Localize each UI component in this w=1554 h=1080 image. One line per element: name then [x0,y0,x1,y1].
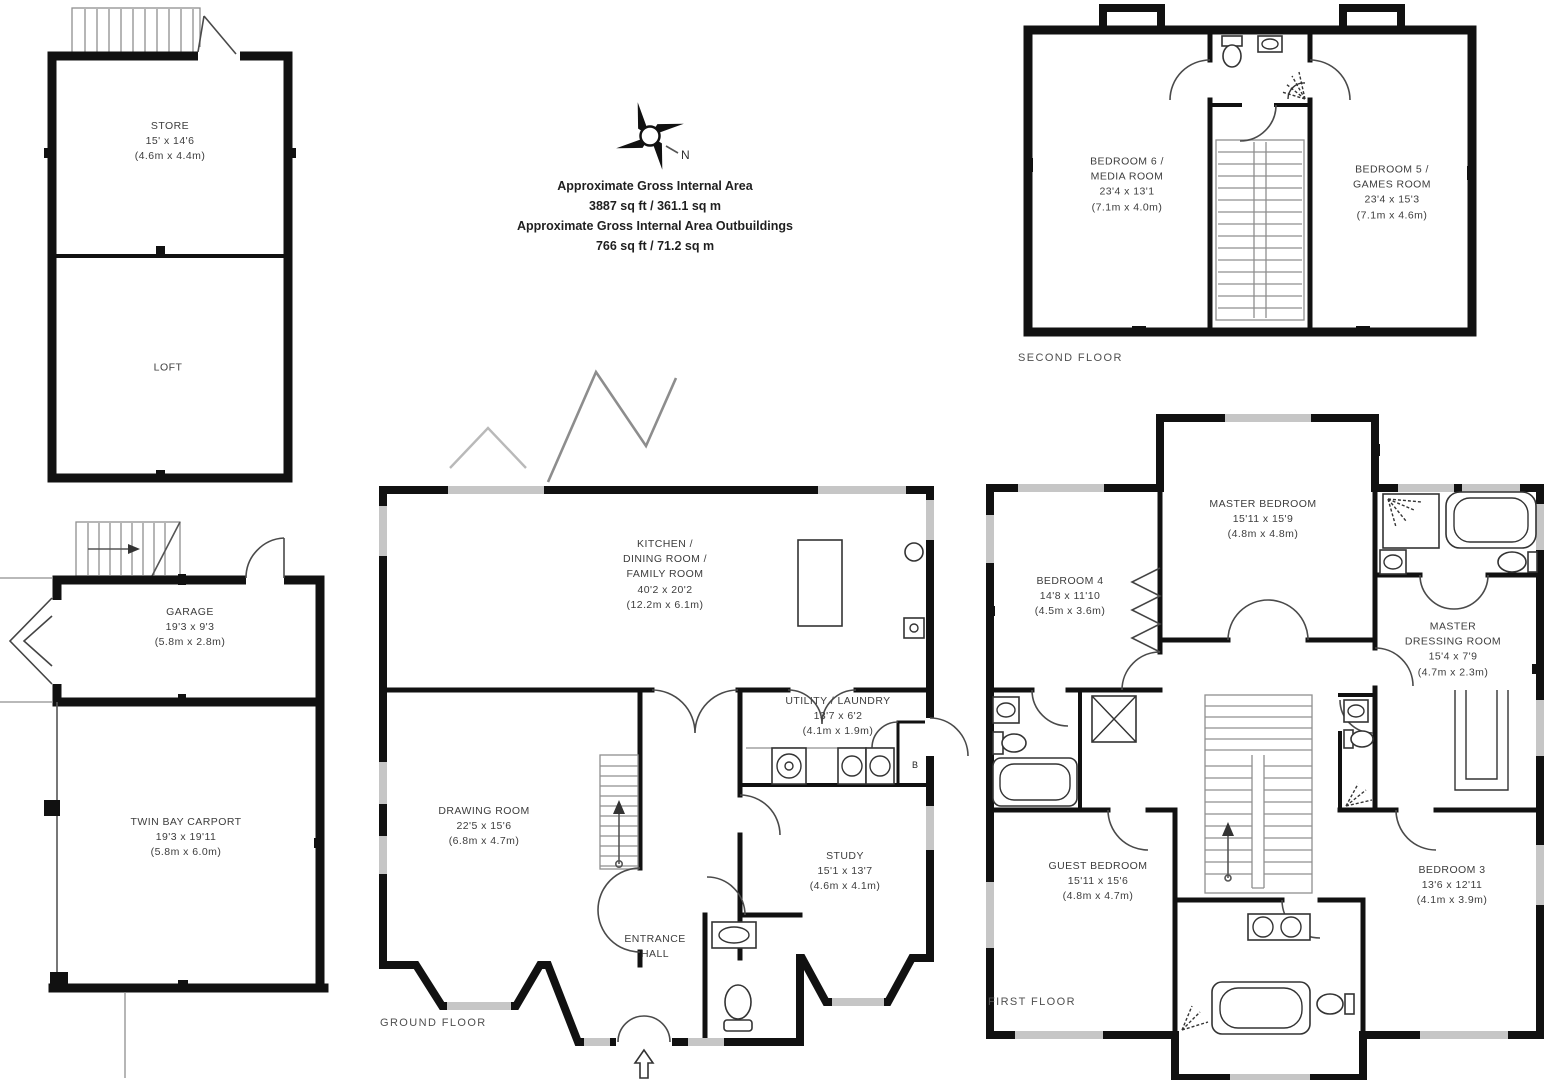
break-line [450,428,526,468]
room-name: FAMILY ROOM [623,567,707,582]
room-label-guest-bedroom: GUEST BEDROOM 15'11 x 15'6 (4.8m x 4.7m) [1048,859,1147,905]
boiler-label: B [912,760,918,770]
room-dims-imperial: 15'4 x 7'9 [1405,650,1501,665]
room-label-study: STUDY 15'1 x 13'7 (4.6m x 4.1m) [810,849,881,895]
room-dims-metric: (7.1m x 4.6m) [1353,208,1431,223]
room-dims-metric: (4.7m x 2.3m) [1405,665,1501,680]
room-dims-imperial: 22'5 x 15'6 [438,819,529,834]
area-summary-line: Approximate Gross Internal Area [517,176,793,196]
room-name: DRESSING ROOM [1405,635,1501,650]
room-dims-metric: (6.8m x 4.7m) [438,835,529,850]
room-label-bedroom-5: BEDROOM 5 / GAMES ROOM 23'4 x 15'3 (7.1m… [1353,163,1431,224]
room-label-kitchen: KITCHEN / DINING ROOM / FAMILY ROOM 40'2… [623,537,707,613]
room-dims-metric: (4.6m x 4.4m) [135,150,206,165]
room-name: MASTER [1405,620,1501,635]
room-name: HALL [624,947,685,962]
door-arc [246,538,284,578]
carport-post [50,972,68,990]
room-dims-metric: (12.2m x 6.1m) [623,598,707,613]
room-name: KITCHEN / [623,537,707,552]
bath-icon [1212,982,1310,1034]
bath-icon [993,758,1077,806]
room-dims-metric: (4.8m x 4.7m) [1048,890,1147,905]
room-name: UTILITY / LAUNDRY [785,694,890,709]
room-dims-imperial: 14'8 x 11'10 [1035,589,1106,604]
room-name: MASTER BEDROOM [1209,497,1316,512]
stairs-icon [76,522,180,576]
room-dims-metric: (4.1m x 3.9m) [1417,894,1488,909]
kitchen-island [798,540,842,626]
room-name: GUEST BEDROOM [1048,859,1147,874]
compass-icon [616,102,684,170]
room-dims-metric: (4.1m x 1.9m) [785,725,890,740]
caption-second-floor: SECOND FLOOR [1018,353,1123,364]
room-label-bedroom-3: BEDROOM 3 13'6 x 12'11 (4.1m x 3.9m) [1417,863,1488,909]
room-label-loft: LOFT [154,360,183,375]
room-dims-imperial: 13'7 x 6'2 [785,709,890,724]
north-label: N [681,148,690,162]
room-dims-metric: (5.8m x 2.8m) [155,636,226,651]
room-dims-imperial: 13'6 x 12'11 [1417,878,1488,893]
room-dims-imperial: 19'3 x 9'3 [155,620,226,635]
room-label-utility: UTILITY / LAUNDRY 13'7 x 6'2 (4.1m x 1.9… [785,694,890,740]
room-label-garage: GARAGE 19'3 x 9'3 (5.8m x 2.8m) [155,605,226,651]
room-name: BEDROOM 6 / [1090,155,1164,170]
caption-first-floor: FIRST FLOOR [988,997,1076,1008]
room-dims-metric: (4.8m x 4.8m) [1209,528,1316,543]
room-name: BEDROOM 3 [1417,863,1488,878]
entrance-arrow-icon [635,1050,653,1078]
stair-direction-arrow [128,544,140,554]
door-arc [930,718,968,756]
room-dims-metric: (4.5m x 3.6m) [1035,605,1106,620]
carport-post [44,800,60,816]
sink-icon [905,543,923,561]
toilet-icon [1498,552,1526,572]
break-line [548,372,676,482]
toilet-icon [1317,994,1343,1014]
room-label-bedroom-6: BEDROOM 6 / MEDIA ROOM 23'4 x 13'1 (7.1m… [1090,155,1164,216]
room-label-carport: TWIN BAY CARPORT 19'3 x 19'11 (5.8m x 6.… [130,815,241,861]
room-dims-imperial: 23'4 x 15'3 [1353,193,1431,208]
room-name: DINING ROOM / [623,552,707,567]
room-dims-imperial: 15'11 x 15'6 [1048,874,1147,889]
room-name: BEDROOM 5 / [1353,163,1431,178]
room-dims-metric: (5.8m x 6.0m) [130,846,241,861]
area-summary: Approximate Gross Internal Area 3887 sq … [517,176,793,256]
room-name: ENTRANCE [624,932,685,947]
area-summary-line: 3887 sq ft / 361.1 sq m [517,196,793,216]
room-name: GAMES ROOM [1353,178,1431,193]
garage-door-chevron [10,598,52,684]
room-name: BEDROOM 4 [1035,574,1106,589]
caption-ground-floor: GROUND FLOOR [380,1018,487,1029]
room-dims-imperial: 19'3 x 19'11 [130,830,241,845]
room-label-master-bedroom: MASTER BEDROOM 15'11 x 15'9 (4.8m x 4.8m… [1209,497,1316,543]
room-label-entrance-hall: ENTRANCE HALL [624,932,685,962]
bath-icon [1446,492,1536,548]
room-label-store: STORE 15' x 14'6 (4.6m x 4.4m) [135,119,206,165]
toilet-icon [725,985,751,1019]
room-name: LOFT [154,360,183,375]
room-dims-imperial: 40'2 x 20'2 [623,583,707,598]
room-name: STUDY [810,849,881,864]
area-summary-line: 766 sq ft / 71.2 sq m [517,236,793,256]
area-summary-line: Approximate Gross Internal Area Outbuild… [517,216,793,236]
store-loft-plan [44,8,296,479]
room-dims-imperial: 15' x 14'6 [135,134,206,149]
room-dims-metric: (4.6m x 4.1m) [810,880,881,895]
room-dims-imperial: 15'11 x 15'9 [1209,512,1316,527]
room-dims-imperial: 15'1 x 13'7 [810,864,881,879]
floorplan-page: N Approximate Gross Internal Area 3887 s… [0,0,1554,1080]
room-name: GARAGE [155,605,226,620]
room-dims-metric: (7.1m x 4.0m) [1090,200,1164,215]
room-dims-imperial: 23'4 x 13'1 [1090,185,1164,200]
stairs-icon [72,8,200,54]
room-name: STORE [135,119,206,134]
oven-icon [904,618,924,638]
room-label-bedroom-4: BEDROOM 4 14'8 x 11'10 (4.5m x 3.6m) [1035,574,1106,620]
room-label-drawing-room: DRAWING ROOM 22'5 x 15'6 (6.8m x 4.7m) [438,804,529,850]
room-label-master-dressing-room: MASTER DRESSING ROOM 15'4 x 7'9 (4.7m x … [1405,620,1501,681]
room-name: DRAWING ROOM [438,804,529,819]
shower-icon [1383,494,1439,548]
floorplan-linework [0,0,1554,1080]
room-name: TWIN BAY CARPORT [130,815,241,830]
room-name: MEDIA ROOM [1090,170,1164,185]
